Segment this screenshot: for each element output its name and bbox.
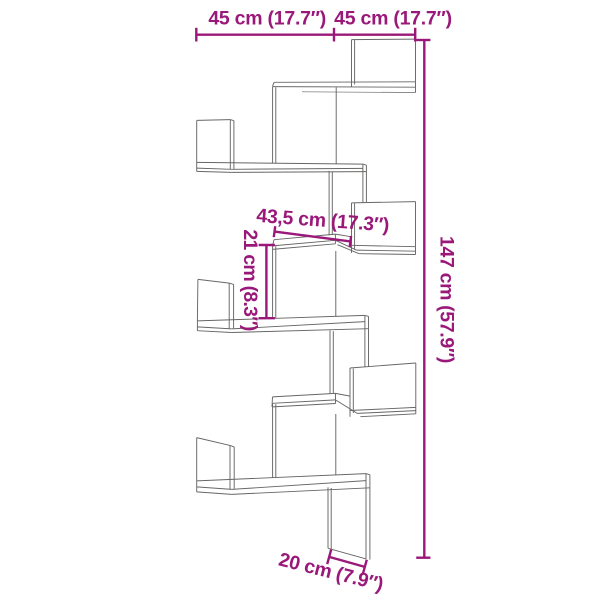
svg-text:20 cm (7.9″): 20 cm (7.9″) xyxy=(276,549,385,596)
svg-text:45 cm (17.7″): 45 cm (17.7″) xyxy=(334,8,452,30)
svg-text:147 cm (57.9″): 147 cm (57.9″) xyxy=(435,236,457,363)
svg-text:45 cm (17.7″): 45 cm (17.7″) xyxy=(208,8,326,30)
svg-text:21 cm (8.3″): 21 cm (8.3″) xyxy=(239,229,261,330)
